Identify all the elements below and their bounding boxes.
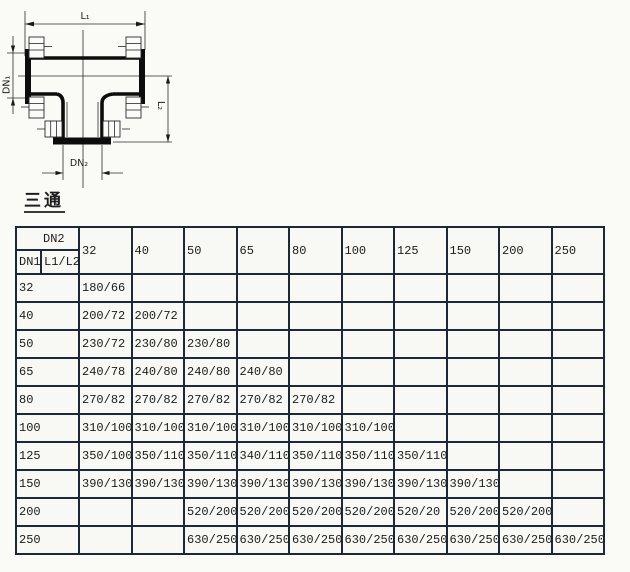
column-header-dn2-125: 125 xyxy=(394,227,447,274)
l1l2-value-cell: 310/100 xyxy=(289,414,342,442)
l1l2-value-cell: 230/80 xyxy=(184,330,237,358)
corner-dn1-label: DN1 xyxy=(16,250,41,274)
corner-l1l2-label: L1/L2 xyxy=(41,250,79,274)
l1l2-value-cell: 230/72 xyxy=(79,330,132,358)
l1l2-value-cell: 390/130 xyxy=(237,470,290,498)
l1l2-value-cell: 630/250 xyxy=(447,526,500,554)
column-header-dn2-150: 150 xyxy=(447,227,500,274)
l1l2-value-cell: 350/100 xyxy=(79,442,132,470)
dim-label-l1: L₁ xyxy=(80,11,89,22)
l1l2-value-cell: 270/82 xyxy=(184,386,237,414)
table-row: 200520/200520/200520/200520/200520/20520… xyxy=(16,498,604,526)
l1l2-value-cell xyxy=(552,302,605,330)
l1l2-value-cell xyxy=(342,358,395,386)
l1l2-value-cell: 390/130 xyxy=(289,470,342,498)
l1l2-value-cell: 630/250 xyxy=(342,526,395,554)
l1l2-value-cell: 520/200 xyxy=(342,498,395,526)
flange-bolts xyxy=(29,37,141,137)
l1l2-value-cell: 240/80 xyxy=(237,358,290,386)
l1l2-value-cell: 310/100 xyxy=(79,414,132,442)
l1l2-value-cell: 350/110 xyxy=(184,442,237,470)
l1l2-value-cell: 200/72 xyxy=(79,302,132,330)
l1l2-value-cell: 240/80 xyxy=(132,358,185,386)
l1l2-value-cell xyxy=(132,274,185,302)
l1l2-value-cell: 230/80 xyxy=(132,330,185,358)
l1l2-value-cell xyxy=(447,274,500,302)
l1l2-value-cell xyxy=(394,330,447,358)
l1l2-value-cell xyxy=(552,358,605,386)
l1l2-value-cell xyxy=(552,330,605,358)
l1l2-value-cell: 240/78 xyxy=(79,358,132,386)
l1l2-value-cell: 630/250 xyxy=(394,526,447,554)
l1l2-value-cell xyxy=(447,358,500,386)
l1l2-value-cell xyxy=(447,386,500,414)
corner-dn2-label: DN2 xyxy=(16,227,79,250)
l1l2-value-cell xyxy=(79,498,132,526)
table-row: 50230/72230/80230/80 xyxy=(16,330,604,358)
table-row: 125350/100350/110350/110340/110350/11035… xyxy=(16,442,604,470)
column-header-dn2-250: 250 xyxy=(552,227,605,274)
l1l2-value-cell: 630/250 xyxy=(289,526,342,554)
row-label-dn1-80: 80 xyxy=(16,386,79,414)
l1l2-value-cell xyxy=(237,302,290,330)
l1l2-value-cell: 630/250 xyxy=(499,526,552,554)
l1l2-value-cell xyxy=(184,302,237,330)
column-header-dn2-100: 100 xyxy=(342,227,395,274)
l1l2-value-cell: 270/82 xyxy=(79,386,132,414)
l1l2-value-cell xyxy=(552,470,605,498)
l1l2-value-cell xyxy=(552,414,605,442)
row-label-dn1-125: 125 xyxy=(16,442,79,470)
l1l2-value-cell xyxy=(499,386,552,414)
l1l2-value-cell xyxy=(342,302,395,330)
l1l2-value-cell xyxy=(447,414,500,442)
l1l2-value-cell xyxy=(499,442,552,470)
row-label-dn1-50: 50 xyxy=(16,330,79,358)
l1l2-value-cell xyxy=(394,386,447,414)
l1l2-value-cell xyxy=(237,330,290,358)
l1l2-value-cell: 270/82 xyxy=(237,386,290,414)
l1l2-value-cell: 310/100 xyxy=(237,414,290,442)
l1l2-value-cell: 200/72 xyxy=(132,302,185,330)
l1l2-value-cell xyxy=(499,330,552,358)
l1l2-value-cell xyxy=(552,274,605,302)
l1l2-value-cell xyxy=(447,330,500,358)
l1l2-value-cell: 310/100 xyxy=(184,414,237,442)
l1l2-value-cell: 630/250 xyxy=(184,526,237,554)
table-row: 65240/78240/80240/80240/80 xyxy=(16,358,604,386)
column-header-dn2-200: 200 xyxy=(499,227,552,274)
l1l2-value-cell xyxy=(499,302,552,330)
row-label-dn1-65: 65 xyxy=(16,358,79,386)
column-header-dn2-50: 50 xyxy=(184,227,237,274)
l1l2-value-cell: 350/110 xyxy=(394,442,447,470)
l1l2-value-cell: 520/200 xyxy=(499,498,552,526)
row-label-dn1-32: 32 xyxy=(16,274,79,302)
l1l2-value-cell: 390/130 xyxy=(447,470,500,498)
l1l2-value-cell xyxy=(237,274,290,302)
l1l2-value-cell xyxy=(342,330,395,358)
l1l2-value-cell: 390/130 xyxy=(342,470,395,498)
column-header-dn2-80: 80 xyxy=(289,227,342,274)
l1l2-value-cell: 350/110 xyxy=(132,442,185,470)
row-label-dn1-150: 150 xyxy=(16,470,79,498)
l1l2-value-cell: 520/20 xyxy=(394,498,447,526)
l1l2-value-cell: 270/82 xyxy=(132,386,185,414)
dim-label-dn2: DN₂ xyxy=(70,158,88,169)
row-label-dn1-250: 250 xyxy=(16,526,79,554)
table-row: 32180/66 xyxy=(16,274,604,302)
header-row-top: DN2 3240506580100125150200250 xyxy=(16,227,604,250)
tee-table-body: DN2 3240506580100125150200250 DN1 L1/L2 … xyxy=(16,227,604,554)
l1l2-value-cell: 390/130 xyxy=(184,470,237,498)
tee-dimension-table: DN2 3240506580100125150200250 DN1 L1/L2 … xyxy=(15,226,605,555)
l1l2-value-cell: 520/200 xyxy=(184,498,237,526)
table-row: 40200/72200/72 xyxy=(16,302,604,330)
table-row: 150390/130390/130390/130390/130390/13039… xyxy=(16,470,604,498)
l1l2-value-cell: 630/250 xyxy=(552,526,605,554)
l1l2-value-cell xyxy=(552,386,605,414)
dim-label-dn1: DN₁ xyxy=(2,76,13,94)
l1l2-value-cell: 390/130 xyxy=(394,470,447,498)
l1l2-value-cell: 310/100 xyxy=(342,414,395,442)
l1l2-value-cell: 390/130 xyxy=(79,470,132,498)
l1l2-value-cell xyxy=(447,302,500,330)
l1l2-value-cell: 520/200 xyxy=(447,498,500,526)
l1l2-value-cell xyxy=(289,358,342,386)
l1l2-value-cell xyxy=(132,526,185,554)
l1l2-value-cell xyxy=(289,330,342,358)
l1l2-value-cell xyxy=(499,358,552,386)
l1l2-value-cell xyxy=(184,274,237,302)
row-label-dn1-200: 200 xyxy=(16,498,79,526)
l1l2-value-cell: 350/110 xyxy=(342,442,395,470)
l1l2-value-cell: 310/100 xyxy=(132,414,185,442)
l1l2-value-cell xyxy=(552,498,605,526)
l1l2-value-cell: 180/66 xyxy=(79,274,132,302)
l1l2-value-cell: 350/110 xyxy=(289,442,342,470)
l1l2-value-cell xyxy=(289,302,342,330)
l1l2-value-cell xyxy=(132,498,185,526)
l1l2-value-cell xyxy=(499,274,552,302)
l1l2-value-cell xyxy=(394,414,447,442)
dim-label-l2: L₂ xyxy=(155,101,166,110)
column-header-dn2-32: 32 xyxy=(79,227,132,274)
l1l2-value-cell: 340/110 xyxy=(237,442,290,470)
l1l2-value-cell xyxy=(394,358,447,386)
tee-fitting-drawing: L₁ DN₁ L₂ DN₂ xyxy=(0,0,185,195)
l1l2-value-cell: 630/250 xyxy=(237,526,290,554)
column-header-dn2-40: 40 xyxy=(132,227,185,274)
l1l2-value-cell xyxy=(499,470,552,498)
l1l2-value-cell xyxy=(342,386,395,414)
l1l2-value-cell xyxy=(342,274,395,302)
column-header-dn2-65: 65 xyxy=(237,227,290,274)
l1l2-value-cell: 390/130 xyxy=(132,470,185,498)
row-label-dn1-40: 40 xyxy=(16,302,79,330)
l1l2-value-cell: 520/200 xyxy=(237,498,290,526)
l1l2-value-cell: 520/200 xyxy=(289,498,342,526)
table-row: 250630/250630/250630/250630/250630/25063… xyxy=(16,526,604,554)
l1l2-value-cell xyxy=(394,302,447,330)
l1l2-value-cell xyxy=(499,414,552,442)
l1l2-value-cell xyxy=(79,526,132,554)
table-row: 100310/100310/100310/100310/100310/10031… xyxy=(16,414,604,442)
l1l2-value-cell xyxy=(289,274,342,302)
l1l2-value-cell: 240/80 xyxy=(184,358,237,386)
section-title: 三通 xyxy=(24,190,65,213)
l1l2-value-cell xyxy=(552,442,605,470)
l1l2-value-cell: 270/82 xyxy=(289,386,342,414)
l1l2-value-cell xyxy=(394,274,447,302)
l1l2-value-cell xyxy=(447,442,500,470)
table-row: 80270/82270/82270/82270/82270/82 xyxy=(16,386,604,414)
row-label-dn1-100: 100 xyxy=(16,414,79,442)
